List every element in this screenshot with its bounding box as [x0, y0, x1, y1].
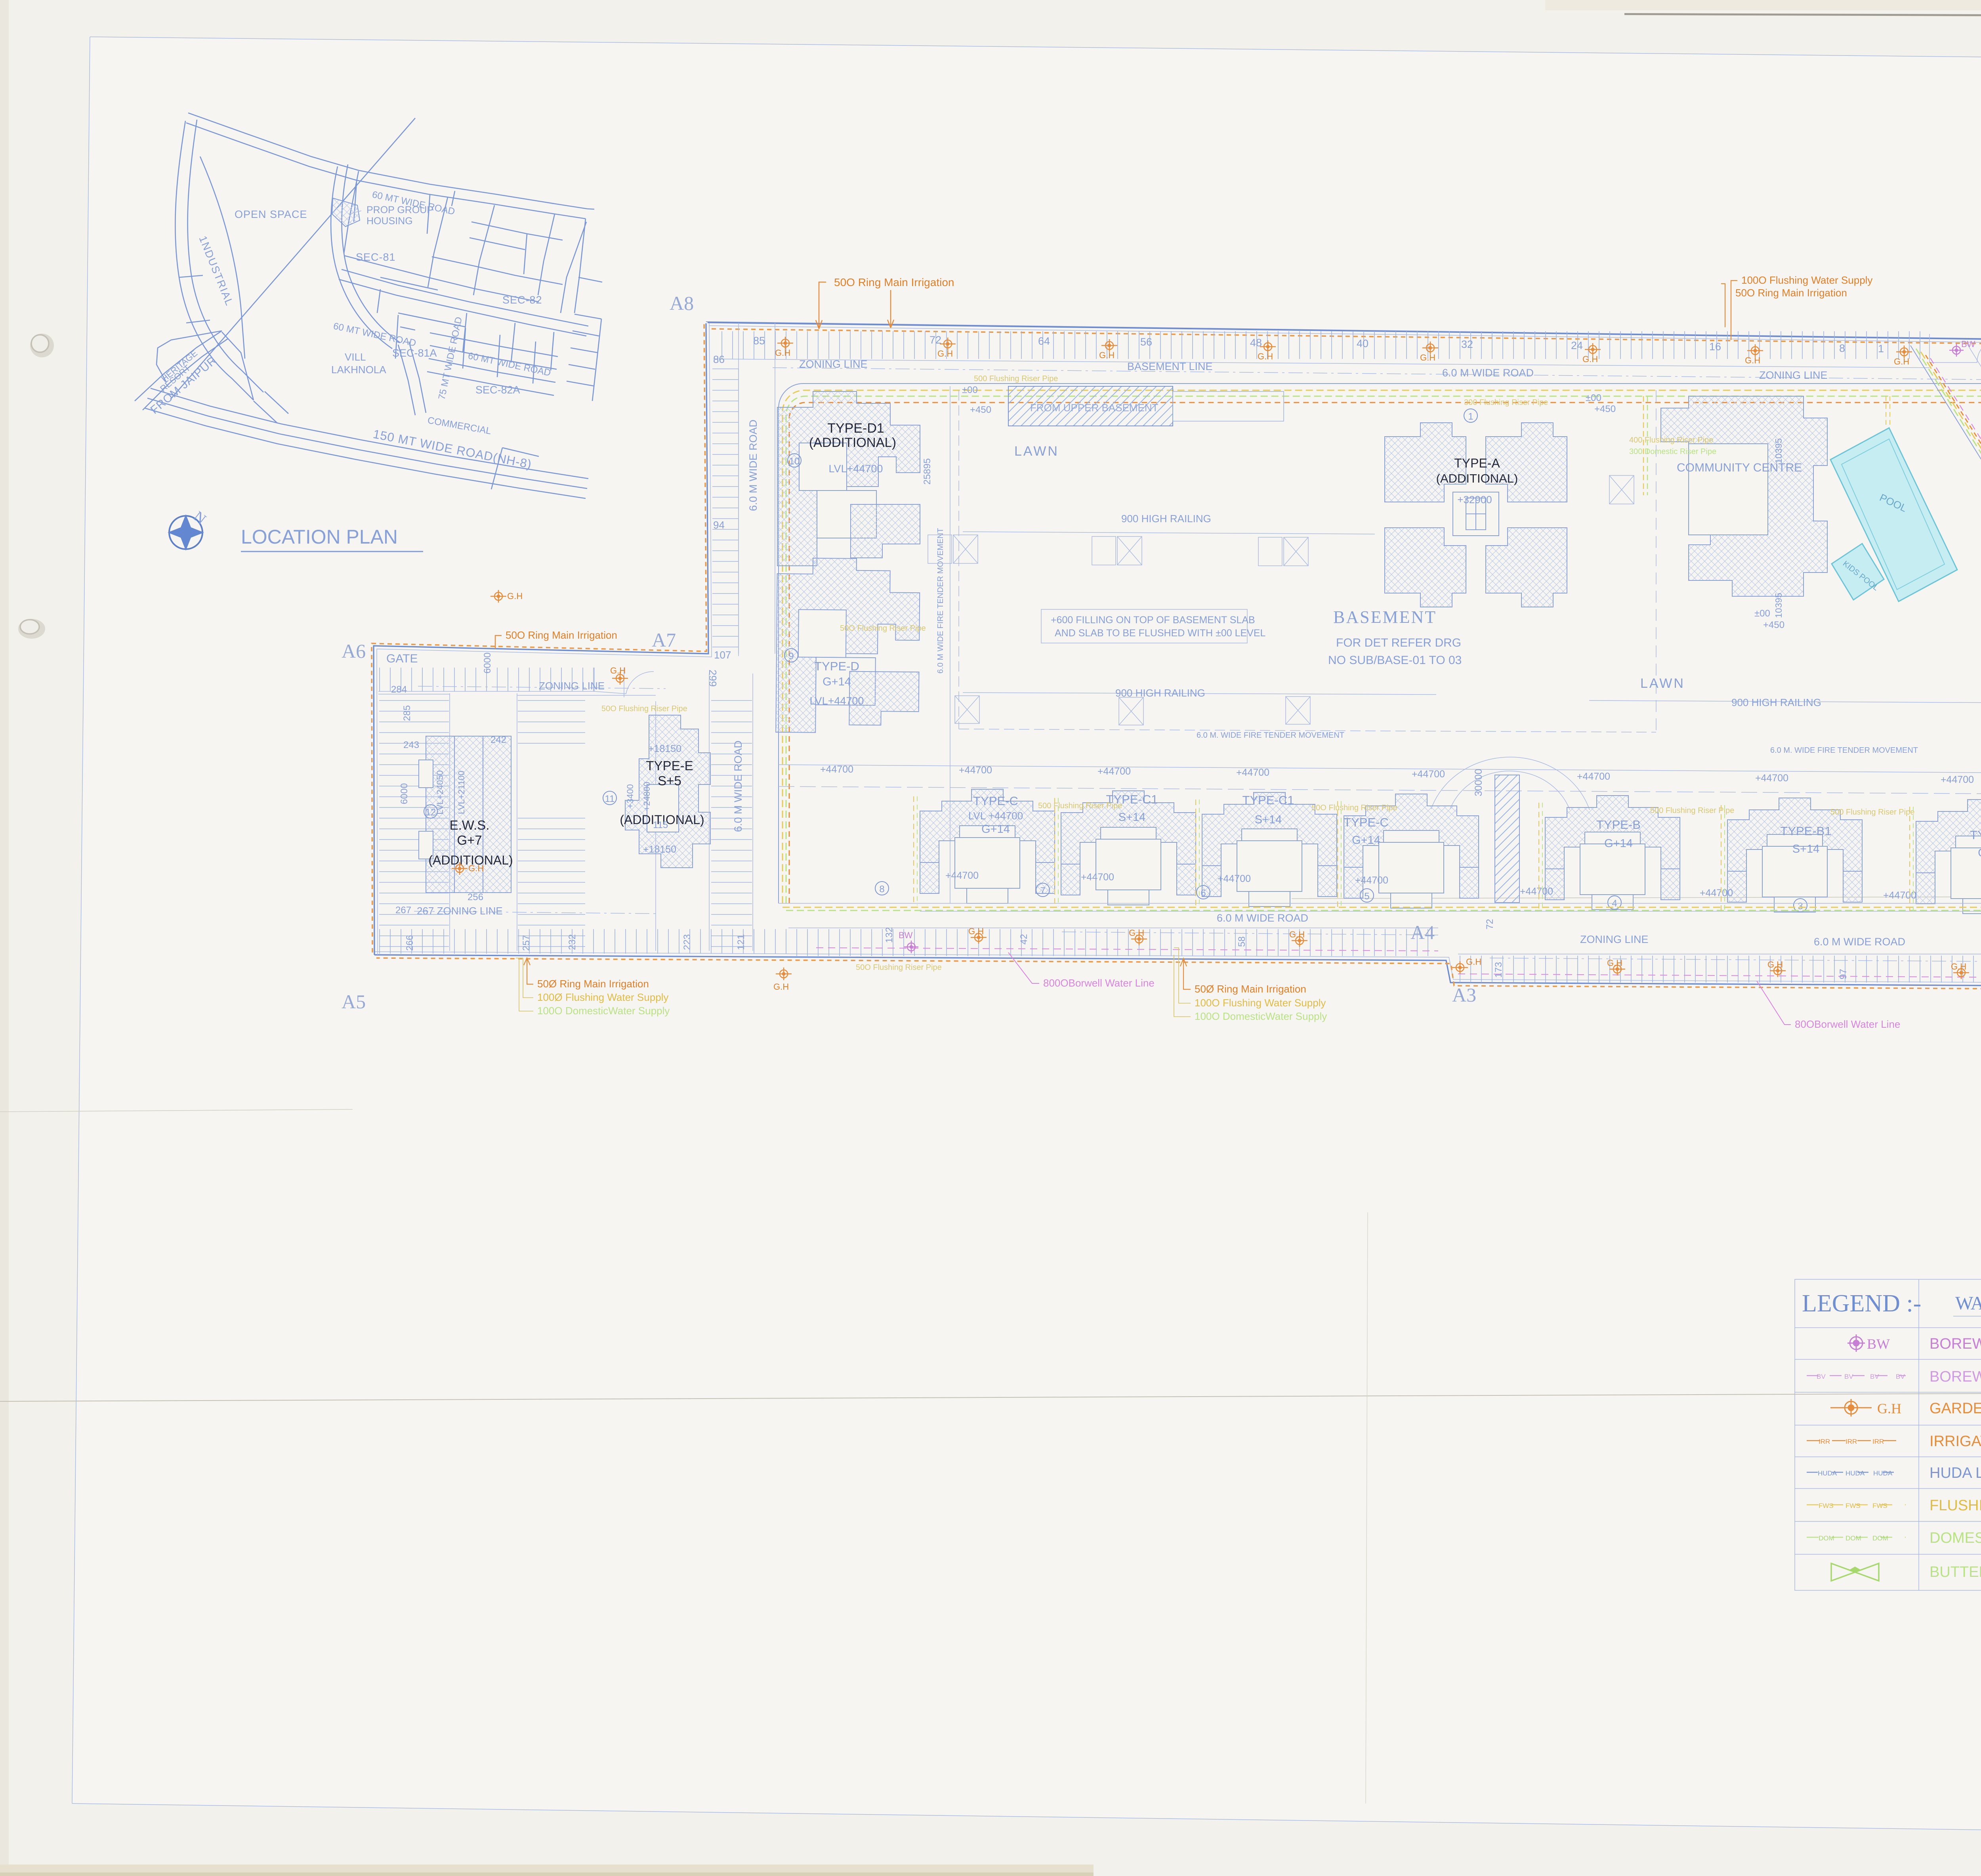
svg-text:E.W.S.: E.W.S.	[450, 818, 490, 832]
svg-text:243: 243	[403, 740, 419, 750]
svg-text:+450: +450	[1763, 620, 1784, 630]
svg-text:G+14: G+14	[823, 676, 851, 688]
svg-text:LVL+21100: LVL+21100	[456, 771, 466, 814]
svg-text:FOR DET REFER DRG: FOR DET REFER DRG	[1336, 636, 1461, 649]
svg-text:+44700: +44700	[1577, 771, 1610, 782]
svg-text:100O Flushing Water Supply: 100O Flushing Water Supply	[1195, 997, 1326, 1009]
svg-text:6.0 M. WIDE FIRE TENDER MOVEME: 6.0 M. WIDE FIRE TENDER MOVEMENT	[1197, 731, 1344, 740]
svg-text:FLUSHING WATER SUPPLY: FLUSHING WATER SUPPLY	[1929, 1497, 1981, 1514]
svg-text:72: 72	[1485, 919, 1495, 929]
svg-text:+44700: +44700	[820, 764, 853, 775]
svg-text:25895: 25895	[922, 458, 933, 485]
svg-text:6.0 M. WIDE FIRE TENDER MOVEME: 6.0 M. WIDE FIRE TENDER MOVEMENT	[1770, 746, 1918, 755]
svg-text:G.H: G.H	[1129, 928, 1144, 938]
svg-text:HUDA: HUDA	[1818, 1470, 1837, 1477]
svg-text:FWS: FWS	[1845, 1502, 1861, 1510]
svg-text:LVL+44700: LVL+44700	[829, 463, 883, 475]
svg-text:50O Flushing Riser Pipe: 50O Flushing Riser Pipe	[1311, 803, 1397, 812]
svg-text:ZONING LINE: ZONING LINE	[539, 680, 605, 692]
svg-text:6000: 6000	[399, 783, 410, 804]
svg-text:LAWN: LAWN	[1014, 444, 1059, 459]
svg-text:LVL+44700: LVL+44700	[810, 695, 864, 707]
svg-text:(ADDITIONAL): (ADDITIONAL)	[1436, 471, 1518, 485]
svg-text:BASEMENT LINE: BASEMENT LINE	[1127, 361, 1213, 372]
svg-text:G.H: G.H	[610, 666, 626, 676]
svg-text:G.H: G.H	[773, 982, 789, 992]
svg-text:BV: BV	[1817, 1373, 1826, 1380]
svg-text:BV: BV	[1896, 1373, 1905, 1380]
svg-text:OPEN SPACE: OPEN SPACE	[235, 208, 307, 220]
svg-text:DOM: DOM	[1845, 1534, 1861, 1542]
svg-text:SEC-82: SEC-82	[502, 294, 542, 306]
svg-text:S+5: S+5	[658, 773, 681, 788]
svg-text:94: 94	[713, 519, 725, 531]
svg-text:TYPE-A: TYPE-A	[1454, 456, 1500, 470]
svg-text:G.H: G.H	[937, 349, 953, 359]
svg-text:G.H: G.H	[1258, 351, 1273, 361]
svg-text:G+7: G+7	[457, 833, 482, 847]
svg-text:16: 16	[1709, 341, 1721, 353]
svg-text:500 Flushing Riser Pipe: 500 Flushing Riser Pipe	[1038, 802, 1122, 810]
svg-text:TYPE-B: TYPE-B	[1596, 818, 1641, 832]
svg-text:500 Flushing Riser Pipe: 500 Flushing Riser Pipe	[1650, 806, 1734, 815]
svg-text:6: 6	[1200, 888, 1206, 899]
svg-text:8: 8	[1839, 342, 1845, 354]
svg-text:50O Ring Main Irrigation: 50O Ring Main Irrigation	[834, 276, 954, 288]
svg-text:900 HIGH RAILING: 900 HIGH RAILING	[1731, 697, 1821, 708]
svg-text:A8: A8	[670, 292, 694, 314]
svg-text:6.0 M WIDE ROAD: 6.0 M WIDE ROAD	[1217, 912, 1308, 924]
svg-text:50O Ring Main Irrigation: 50O Ring Main Irrigation	[506, 629, 617, 641]
svg-text:+18150: +18150	[643, 844, 676, 855]
svg-text:+44700: +44700	[1883, 890, 1916, 901]
svg-text:FWS: FWS	[1872, 1502, 1887, 1510]
svg-text:+44700: +44700	[1218, 873, 1251, 884]
svg-text:ZONING LINE: ZONING LINE	[1759, 369, 1828, 381]
svg-text:11: 11	[605, 794, 615, 804]
svg-text:IRR: IRR	[1819, 1438, 1830, 1445]
svg-text:LVL +44700: LVL +44700	[968, 810, 1023, 822]
svg-text:32: 32	[1461, 338, 1473, 350]
svg-text:HOUSING: HOUSING	[366, 216, 413, 227]
svg-text:BOREWELL: BOREWELL	[1929, 1336, 1981, 1352]
svg-text:VILL: VILL	[345, 351, 366, 363]
svg-text:TYPE-C: TYPE-C	[1344, 815, 1389, 829]
svg-text:115: 115	[653, 820, 668, 830]
svg-text:173: 173	[1493, 962, 1504, 978]
svg-text:+44700: +44700	[1700, 887, 1733, 899]
svg-text:TYPE-B1: TYPE-B1	[1780, 824, 1831, 838]
svg-text:A7: A7	[652, 629, 676, 651]
svg-text:FROM UPPER BASEMENT: FROM UPPER BASEMENT	[1030, 402, 1158, 414]
svg-text:+3400: +3400	[625, 784, 635, 809]
svg-text:97: 97	[1838, 969, 1849, 979]
svg-text:IRRIGATION LINE: IRRIGATION LINE	[1929, 1433, 1981, 1450]
svg-text:500 Flushing Riser Pipe: 500 Flushing Riser Pipe	[1830, 808, 1914, 817]
svg-text:6.0 M WIDE ROAD: 6.0 M WIDE ROAD	[732, 740, 744, 832]
svg-text:400 Flushing Riser Pipe: 400 Flushing Riser Pipe	[1629, 436, 1713, 445]
svg-text:+450: +450	[1594, 404, 1616, 414]
svg-text:+44700: +44700	[1097, 766, 1131, 777]
svg-text:500 Flushing Riser Pipe: 500 Flushing Riser Pipe	[974, 374, 1058, 383]
svg-text:TYPE-D: TYPE-D	[814, 659, 859, 673]
svg-text:300 Domestic Riser Pipe: 300 Domestic Riser Pipe	[1629, 447, 1716, 456]
svg-text:G.H: G.H	[1745, 355, 1760, 365]
svg-text:+44700: +44700	[1236, 767, 1269, 778]
svg-text:+44700: +44700	[1355, 875, 1388, 886]
svg-text:30000: 30000	[1473, 769, 1484, 796]
svg-text:BW: BW	[1867, 1336, 1890, 1352]
svg-text:WATER SUPPLY: WATER SUPPLY	[1955, 1293, 1981, 1314]
svg-text:6.0 M WIDE ROAD: 6.0 M WIDE ROAD	[747, 420, 759, 511]
svg-text:64: 64	[1038, 335, 1050, 347]
svg-text:5: 5	[1364, 891, 1369, 902]
svg-text:6.0 M WIDE FIRE TENDER MOVEME: 6.0 M WIDE FIRE TENDER MOVEMENT	[936, 528, 945, 674]
svg-text:10395: 10395	[1773, 593, 1784, 618]
svg-text:S+14: S+14	[1118, 811, 1146, 824]
svg-text:G.H: G.H	[507, 591, 523, 601]
svg-text:+44700: +44700	[1081, 872, 1114, 883]
svg-text:100O Flushing Water Supply: 100O Flushing Water Supply	[1741, 274, 1872, 286]
svg-text:LOCATION PLAN: LOCATION PLAN	[241, 526, 399, 548]
svg-text:G.H: G.H	[1607, 958, 1622, 968]
svg-text:ZONING LINE: ZONING LINE	[1580, 933, 1649, 945]
svg-text:50O Flushing Riser Pipe: 50O Flushing Riser Pipe	[856, 963, 942, 972]
svg-text:+44700: +44700	[1520, 886, 1553, 897]
svg-text:SEC-81: SEC-81	[356, 251, 396, 263]
svg-text:+44700: +44700	[945, 870, 979, 881]
svg-text:±00: ±00	[1586, 393, 1601, 403]
svg-text:G.H: G.H	[775, 348, 790, 358]
svg-text:SEC-81A: SEC-81A	[392, 347, 437, 359]
svg-text:BUTTERFLY VALVE: BUTTERFLY VALVE	[1929, 1564, 1981, 1580]
svg-text:G.H: G.H	[1099, 350, 1115, 360]
svg-text:267: 267	[395, 905, 411, 916]
svg-text:42: 42	[1019, 934, 1029, 945]
svg-text:A6: A6	[342, 640, 366, 662]
svg-text:LAWN: LAWN	[1640, 676, 1685, 691]
svg-text:(ADDITIONAL): (ADDITIONAL)	[809, 435, 896, 450]
svg-text:TYPE-D1: TYPE-D1	[827, 421, 884, 436]
svg-text:ZONING LINE: ZONING LINE	[799, 358, 868, 370]
svg-text:107: 107	[714, 649, 731, 661]
svg-text:±00: ±00	[1754, 608, 1770, 619]
svg-text:G.H: G.H	[1420, 353, 1435, 363]
svg-text:SEC-82A: SEC-82A	[475, 384, 520, 396]
svg-text:72: 72	[929, 334, 941, 346]
svg-text:+44700: +44700	[1941, 774, 1974, 785]
svg-text:9: 9	[788, 651, 794, 662]
svg-text:132: 132	[884, 927, 895, 943]
svg-text:24: 24	[1571, 340, 1583, 351]
svg-text:6.0 M WIDE ROAD: 6.0 M WIDE ROAD	[1442, 367, 1534, 379]
svg-text:6.0 M WIDE ROAD: 6.0 M WIDE ROAD	[1814, 936, 1905, 948]
svg-text:G.H: G.H	[1951, 962, 1966, 971]
svg-text:242: 242	[490, 735, 506, 745]
svg-text:100O DomesticWater Supply: 100O DomesticWater Supply	[537, 1005, 670, 1017]
svg-text:80OBorwell Water Line: 80OBorwell Water Line	[1795, 1018, 1900, 1030]
svg-text:58: 58	[1237, 936, 1247, 947]
svg-text:NO SUB/BASE-01 TO 03: NO SUB/BASE-01 TO 03	[1328, 654, 1462, 667]
svg-text:GATE: GATE	[386, 652, 418, 665]
svg-text:300 Flushing Riser Pipe: 300 Flushing Riser Pipe	[1464, 398, 1548, 407]
svg-text:GARDEN HYDRANT: GARDEN HYDRANT	[1929, 1400, 1981, 1417]
svg-text:LAKHNOLA: LAKHNOLA	[331, 364, 386, 376]
svg-text:900 HIGH RAILING: 900 HIGH RAILING	[1121, 513, 1211, 525]
svg-text:G.H: G.H	[1877, 1401, 1901, 1416]
svg-text:6000: 6000	[482, 653, 493, 674]
svg-text:100O DomesticWater Supply: 100O DomesticWater Supply	[1195, 1010, 1327, 1022]
svg-text:PROP GROUP: PROP GROUP	[366, 204, 433, 216]
svg-text:50Ø Ring Main Irrigation: 50Ø Ring Main Irrigation	[1195, 983, 1306, 995]
svg-text:G+14: G+14	[981, 823, 1010, 836]
svg-text:8: 8	[879, 884, 884, 895]
svg-text:12: 12	[426, 807, 436, 818]
svg-text:DOM: DOM	[1872, 1534, 1888, 1542]
svg-text:+24800: +24800	[642, 782, 652, 811]
svg-text:+44700: +44700	[959, 765, 992, 776]
svg-text:10395: 10395	[1773, 438, 1784, 464]
svg-text:AND SLAB TO BE FLUSHED WITH ±0: AND SLAB TO BE FLUSHED WITH ±00 LEVEL	[1055, 628, 1266, 639]
svg-text:56: 56	[1140, 336, 1152, 348]
svg-text:TYPE-C1: TYPE-C1	[1242, 793, 1294, 807]
svg-text:100Ø Flushing Water Supply: 100Ø Flushing Water Supply	[537, 991, 668, 1003]
svg-text:TYPE-B: TYPE-B	[1970, 828, 1981, 842]
svg-text:FWS: FWS	[1819, 1502, 1834, 1510]
svg-text:TYPE-C: TYPE-C	[973, 794, 1018, 808]
svg-text:7: 7	[1040, 886, 1045, 896]
svg-text:BASEMENT: BASEMENT	[1333, 607, 1437, 627]
svg-text:S+14: S+14	[1792, 843, 1820, 855]
svg-text:G+14: G+14	[1978, 847, 1981, 859]
svg-text:DOM: DOM	[1819, 1534, 1834, 1542]
svg-text:G.H: G.H	[468, 863, 484, 873]
svg-text:IRR: IRR	[1872, 1438, 1884, 1445]
svg-text:G.H: G.H	[968, 926, 984, 936]
svg-text:G.H: G.H	[1894, 357, 1909, 366]
svg-text:LEGEND :-: LEGEND :-	[1802, 1290, 1921, 1317]
svg-text:299: 299	[707, 670, 719, 687]
svg-text:BV: BV	[1870, 1373, 1879, 1380]
svg-text:S+14: S+14	[1255, 813, 1282, 826]
svg-text:+18150: +18150	[648, 743, 681, 754]
svg-text:G.H: G.H	[1466, 957, 1481, 967]
svg-text:284: 284	[391, 684, 407, 695]
svg-text:A4: A4	[1410, 921, 1435, 943]
svg-text:+450: +450	[970, 405, 991, 415]
svg-text:800OBorwell Water Line: 800OBorwell Water Line	[1043, 977, 1155, 989]
svg-text:G.H: G.H	[1767, 960, 1783, 969]
svg-text:+44700: +44700	[1412, 769, 1445, 780]
svg-text:+44700: +44700	[1755, 773, 1788, 784]
svg-text:256: 256	[468, 892, 483, 903]
svg-text:BW: BW	[899, 930, 913, 940]
svg-text:40: 40	[1357, 338, 1368, 349]
svg-text:1: 1	[1468, 411, 1473, 422]
svg-text:285: 285	[402, 705, 412, 721]
svg-text:50Ø Ring Main Irrigation: 50Ø Ring Main Irrigation	[537, 978, 649, 990]
svg-text:TYPE-E: TYPE-E	[646, 758, 693, 773]
svg-text:G.H: G.H	[1582, 354, 1598, 364]
svg-text:1: 1	[1878, 343, 1884, 355]
svg-text:BW: BW	[1961, 339, 1975, 349]
svg-text:A3: A3	[1452, 984, 1476, 1006]
svg-text:A5: A5	[342, 990, 366, 1013]
svg-text:G+14: G+14	[1352, 834, 1380, 847]
svg-text:+32900: +32900	[1457, 494, 1492, 506]
svg-text:50O Ring Main Irrigation: 50O Ring Main Irrigation	[1735, 287, 1847, 299]
svg-text:+600 FILLING ON TOP OF BASEMEN: +600 FILLING ON TOP OF BASEMENT SLAB	[1051, 615, 1255, 626]
svg-text:DOMESTIC WATER SUPPLY: DOMESTIC WATER SUPPLY	[1929, 1530, 1981, 1546]
svg-text:G+14: G+14	[1604, 837, 1633, 850]
svg-text:10: 10	[789, 456, 800, 467]
svg-text:BOREWELL LINE: BOREWELL LINE	[1929, 1368, 1981, 1385]
svg-text:LVL+24050: LVL+24050	[435, 770, 445, 815]
svg-text:HUDA LINE: HUDA LINE	[1929, 1465, 1981, 1481]
svg-text:85: 85	[753, 335, 765, 347]
svg-text:HUDA: HUDA	[1873, 1470, 1893, 1477]
svg-text:±00: ±00	[962, 385, 978, 395]
svg-text:86: 86	[713, 353, 725, 365]
svg-text:IRR: IRR	[1845, 1438, 1857, 1445]
svg-text:BV: BV	[1844, 1373, 1853, 1380]
svg-text:HUDA: HUDA	[1845, 1470, 1865, 1477]
svg-text:50O Flushing Riser Pipe: 50O Flushing Riser Pipe	[601, 704, 687, 713]
svg-text:G.H: G.H	[1289, 929, 1305, 939]
svg-text:50O Flushing Riser Pipe: 50O Flushing Riser Pipe	[840, 624, 926, 633]
